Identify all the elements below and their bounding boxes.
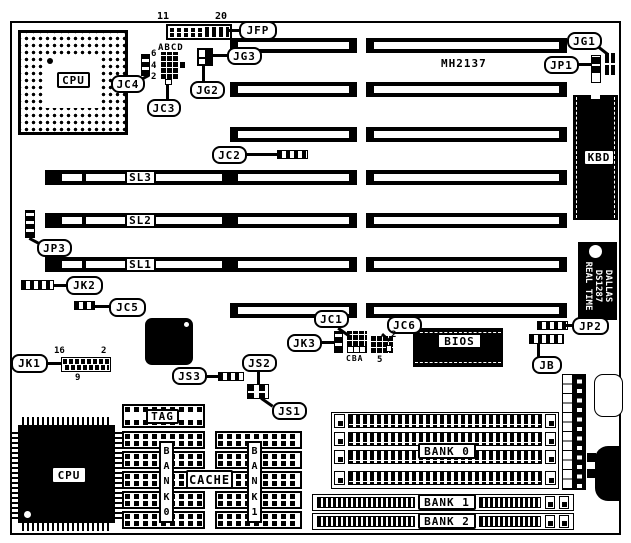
- battery-outline: [594, 374, 623, 417]
- jfp-header-pins-row2: [170, 33, 202, 37]
- simm-latch: [545, 450, 556, 464]
- slot-label-sl2: SL2: [125, 213, 156, 228]
- jp3-connector: [25, 210, 35, 238]
- simm-socket: [317, 497, 415, 508]
- callout-jp1: JP1: [544, 56, 579, 74]
- js2-leader: [257, 371, 260, 385]
- simm-latch: [545, 496, 555, 509]
- jc1-column-letters: CBA: [346, 354, 363, 363]
- isa-slot: [230, 213, 357, 228]
- callout-jk2: JK2: [66, 276, 103, 295]
- jc4-pin6: 6: [151, 49, 156, 59]
- kbd-chip-label: KBD: [584, 150, 614, 165]
- simm-latch: [334, 471, 345, 485]
- jk1-header-row2: [65, 365, 109, 370]
- jc5-leader: [94, 305, 110, 308]
- power-connector: [562, 374, 586, 490]
- jk1-pin9: 9: [75, 373, 80, 383]
- rtc-brand: DALLAS: [603, 249, 613, 323]
- callout-jb: JB: [532, 356, 562, 374]
- callout-jg1: JG1: [567, 32, 602, 50]
- callout-jc2: JC2: [212, 146, 247, 164]
- simm-socket: [348, 414, 542, 428]
- isa-slot: [366, 82, 567, 97]
- jfp-header-pins-block: [205, 27, 229, 37]
- power-connector-pins-outer: [562, 374, 573, 490]
- isa-slot: [230, 127, 357, 142]
- simm-socket: [479, 516, 541, 527]
- jk3-leader: [321, 341, 335, 344]
- callout-jfp: JFP: [239, 21, 277, 40]
- jg1-connector: [605, 53, 617, 75]
- cpu-qfp-pins-left: [10, 429, 18, 519]
- jc4-pin2: 2: [151, 72, 156, 82]
- slot-label-sl1: SL1: [125, 257, 156, 272]
- rtc-chip-text: DALLAS DS1287 REAL TIME: [583, 249, 613, 323]
- simm-latch: [545, 471, 556, 485]
- jk2-header: [21, 280, 54, 290]
- isa-slot: [366, 38, 567, 53]
- callout-js1: JS1: [272, 402, 307, 420]
- slot-label-sl3: SL3: [125, 170, 156, 185]
- keyboard-din-connector: [595, 446, 621, 501]
- jc3-column-letters: ABCD: [158, 43, 184, 53]
- jk1-leader: [47, 362, 62, 365]
- jk1-pin2: 2: [101, 346, 106, 356]
- power-connector-contacts: [577, 376, 582, 488]
- jc6-connector-cell: [386, 345, 392, 352]
- cpu-socket-label: CPU: [57, 72, 90, 88]
- js3-header: [218, 372, 244, 381]
- callout-jp2: JP2: [572, 317, 609, 335]
- simm-latch: [334, 450, 345, 464]
- power-connector-pins-inner: [573, 374, 586, 490]
- simm-socket: [479, 497, 541, 508]
- bank0-label: BANK 0: [418, 443, 476, 459]
- callout-jc5: JC5: [109, 298, 146, 317]
- jc1-connector-bottom-row: [347, 346, 367, 353]
- kbd-chip-notch: [591, 95, 600, 99]
- cache-bank1-label: BANK1: [247, 441, 262, 523]
- simm-socket: [348, 471, 542, 485]
- jb-header: [529, 334, 564, 344]
- callout-jc1: JC1: [314, 310, 349, 328]
- callout-jg3: JG3: [227, 47, 262, 65]
- isa-slot: [366, 257, 567, 272]
- jc2-header: [277, 150, 308, 159]
- isa-slot: [366, 170, 567, 185]
- js3-leader: [206, 375, 219, 378]
- simm-latch: [334, 414, 345, 428]
- pin1-marker-dot: [47, 58, 53, 64]
- jfp-header-pins-row1: [170, 28, 202, 32]
- callout-jc4: JC4: [111, 75, 145, 93]
- bank2-label: BANK 2: [418, 513, 476, 529]
- simm-latch: [545, 414, 556, 428]
- cpu-qfp-pins-bottom: [22, 523, 112, 531]
- jc1-connector: [347, 331, 367, 346]
- jfp-pin20: 20: [215, 11, 227, 22]
- cache-label: CACHE: [186, 470, 233, 489]
- simm-latch: [545, 515, 555, 528]
- rtc-chip: DALLAS DS1287 REAL TIME: [578, 242, 617, 320]
- jp2-header: [537, 321, 568, 330]
- callout-jk1: JK1: [11, 354, 48, 373]
- simm-latch: [334, 432, 345, 446]
- cpu-qfp-label: CPU: [52, 467, 86, 483]
- plcc-pin1-dot: [184, 322, 189, 327]
- callout-jg2: JG2: [190, 81, 225, 99]
- jc4-pin4: 4: [151, 61, 156, 71]
- callout-jk3: JK3: [287, 334, 322, 352]
- motherboard-diagram: CPU 6 4 2 ABCD JC4 JC3 JG3 JG2 11 20 JFP…: [0, 0, 631, 543]
- jk3-connector: [334, 331, 343, 353]
- jg2-leader: [202, 64, 205, 82]
- din-connector-tab: [587, 453, 596, 462]
- bank1-label: BANK 1: [418, 494, 476, 510]
- jk1-header: [61, 357, 111, 372]
- jc3-leader: [166, 85, 169, 100]
- jfp-pin11: 11: [157, 11, 169, 22]
- jc3-connector: [161, 52, 179, 79]
- dallas-logo-icon: [589, 245, 602, 258]
- callout-js2: JS2: [242, 354, 277, 372]
- isa-slot: [366, 127, 567, 142]
- bios-chip-label: BIOS: [437, 333, 482, 349]
- isa-slot: [230, 257, 357, 272]
- cache-bank0-label: BANK0: [159, 441, 174, 523]
- simm-socket: [317, 516, 415, 527]
- tag-label: TAG: [146, 409, 179, 424]
- isa-slot: [366, 213, 567, 228]
- jfp-header: [166, 24, 232, 40]
- cpu-qfp-pin1-dot: [24, 511, 31, 518]
- jc2-leader: [246, 153, 279, 156]
- din-connector-tab: [587, 469, 596, 478]
- simm-latch: [559, 515, 569, 528]
- cpu-qfp-pins-top: [22, 417, 112, 425]
- jc3-connector-key: [180, 62, 185, 68]
- simm-latch: [559, 496, 569, 509]
- rtc-type: REAL TIME: [583, 249, 593, 323]
- jg2-connector: [197, 48, 213, 66]
- jk1-header-row1: [63, 359, 109, 364]
- isa-slot: [230, 170, 357, 185]
- js2-js1-connector: [247, 384, 269, 399]
- callout-jc3: JC3: [147, 99, 181, 117]
- jp1-connector: [591, 55, 601, 83]
- simm-latch: [545, 432, 556, 446]
- rtc-part: DS1287: [593, 249, 603, 323]
- jc6-pin5: 5: [377, 355, 382, 365]
- part-number: MH2137: [441, 57, 487, 70]
- isa-slot: [230, 82, 357, 97]
- callout-jp3: JP3: [37, 239, 72, 257]
- jc4-connector: [141, 54, 150, 76]
- callout-js3: JS3: [172, 367, 207, 385]
- jk1-pin16: 16: [54, 346, 65, 356]
- jg3-leader: [211, 54, 228, 57]
- jc6-pin2: 2: [391, 330, 396, 340]
- jc5-header: [74, 301, 95, 310]
- jp1-leader: [578, 63, 592, 66]
